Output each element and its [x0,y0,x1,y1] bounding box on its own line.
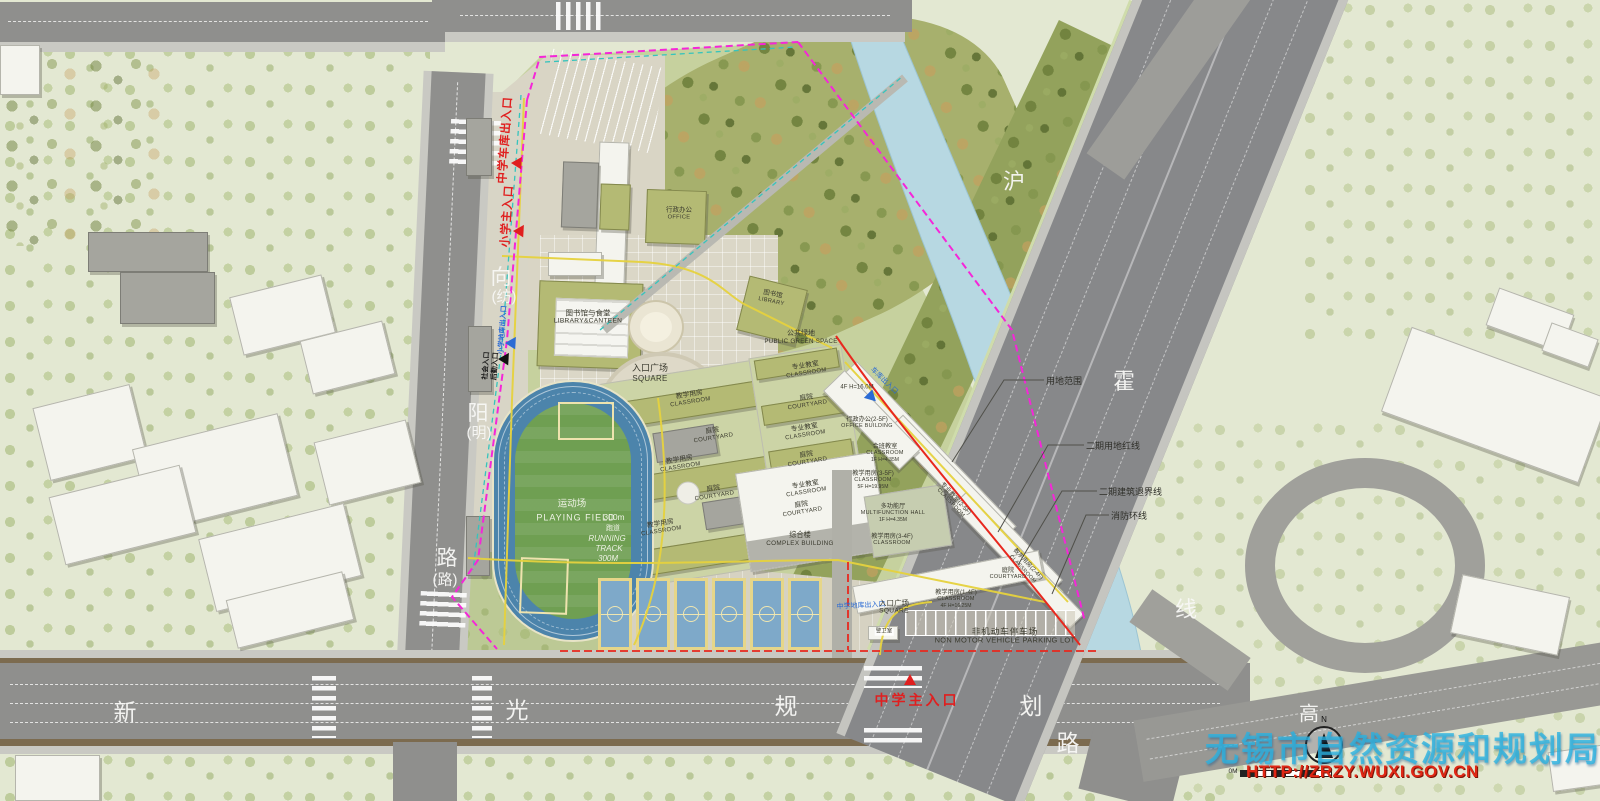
label-zh: 4F H=16.0M [840,384,873,391]
label-en: OFFICE BUILDING [841,423,893,430]
label-zh: 合班教室 [866,443,903,450]
label-en: MULTIFUNCTION HALL [861,510,926,517]
label-height-mark: 4F H=16.0M [840,384,873,391]
site-plan-canvas: 向 (纺) 阳 (明) 路 (路) 新 光 规 划 路 沪 霍 线 高 中学车库… [0,0,1600,801]
road-name-highway: 霍 [1113,364,1135,396]
watermark-url: HTTP://ZRZY.WUXI.GOV.CN [1246,762,1479,782]
label-track-len: 300M [598,554,618,564]
callout-fire-ring: 消防环线 [1111,509,1147,522]
label-zh: 公共绿地 [764,330,837,338]
road-name-west: (明) [467,422,492,443]
label-south-square: 入口广场 SQUARE [879,599,909,616]
road-name-highway: 线 [1175,592,1197,624]
label-en: PUBLIC GREEN SPACE [764,339,837,346]
label-en: SQUARE [632,374,668,384]
label-non-motor-parking: 非机动车停车场 NON MOTOR VEHICLE PARKING LOT [935,626,1076,645]
label-public-green: 公共绿地 PUBLIC GREEN SPACE [764,330,837,346]
label-track-en1: RUNNING [588,534,625,544]
label-courtyard: 庭院 COURTYARD [990,567,1027,581]
label-classroom-1-4f: 教学用房(1-4F) CLASSROOM 4F H=16.25M [935,589,977,609]
road-name-south: 光 [506,691,529,725]
label-zh: 入口广场 [632,363,668,374]
label-field-zh: 运动场 [558,498,587,509]
label-zh: 教学用房(1-4F) [935,589,977,596]
label-note: 1F H=4.35M [861,517,926,523]
label-zh: 警卫室 [876,629,893,636]
building-label-library-canteen: 图书馆与食堂 LIBRARY&CANTEEN [554,309,623,326]
label-zh: 多功能厅 [861,503,926,510]
road-name-south: 新 [114,693,137,727]
entrance-arrow [904,674,916,685]
label-en: COURTYARD [990,574,1027,581]
label-en: CLASSROOM [852,477,894,484]
label-en: CLASSROOM [866,450,903,457]
callout-phase2-setback: 二期建筑退界线 [1099,485,1162,498]
label-zh: 教学用房(3-4F) [871,533,913,540]
label-zh: 入口广场 [879,599,909,608]
label-zh: 教学用房(3-5F) [852,470,894,477]
road-name-west: (纺) [492,286,517,307]
label-en: LIBRARY&CANTEEN [554,318,623,326]
road-name-south: 划 [1020,687,1043,721]
road-name-south: 路 [1057,724,1080,758]
label-track-zh: 跑道 [606,525,620,533]
label-en: SQUARE [879,608,909,616]
label-track-en2: TRACK [595,544,622,554]
label-multifunction: 多功能厅 MULTIFUNCTION HALL 1F H=4.35M [861,503,926,523]
label-zh: 行政办公(2-5F) [841,416,893,423]
label-guard-room: 警卫室 [875,629,894,636]
label-complex-building: 综合楼 COMPLEX BUILDING [766,531,833,547]
label-joint-classroom: 合班教室 CLASSROOM 1F H=4.35M [866,443,903,463]
building-label-office: 行政办公 OFFICE [666,207,692,222]
label-en: OFFICE [666,214,692,221]
label-note: 5F H=19.95M [852,484,894,490]
hill-path [604,78,905,330]
entrance-label-ms-main: 中学主入口 [875,691,960,709]
road-name-highway: 沪 [1003,164,1025,196]
label-note: 1F H=4.35M [866,457,903,463]
label-zh: 行政办公 [666,207,692,215]
label-zh: 综合楼 [766,531,833,540]
road-name-west: (路) [433,569,458,590]
label-office-building: 行政办公(2-5F) OFFICE BUILDING [841,416,893,430]
label-en: CLASSROOM [871,540,913,547]
entrance-label-social-logistics: 社会入口 后勤入口 [481,351,501,380]
label-zh: 庭院 [990,567,1027,574]
label-zh: 图书馆与食堂 [554,309,623,318]
label-entrance-square: 入口广场 SQUARE [632,363,668,383]
label-classroom-3-4f: 教学用房(3-4F) CLASSROOM [871,533,913,547]
callout-site-range: 用地范围 [1046,374,1082,387]
road-name-west: 路 [437,542,458,572]
callout-phase2-redline: 二期用地红线 [1086,439,1140,452]
label-en: COMPLEX BUILDING [766,540,833,548]
road-name-south: 规 [775,687,798,721]
label-en: NON MOTOR VEHICLE PARKING LOT [935,637,1076,646]
label-field-length: 300m [603,512,624,522]
label-classroom-3-5f: 教学用房(3-5F) CLASSROOM 5F H=19.95M [852,470,894,490]
label-en: CLASSROOM [935,596,977,603]
label-note: 4F H=16.25M [935,603,977,609]
